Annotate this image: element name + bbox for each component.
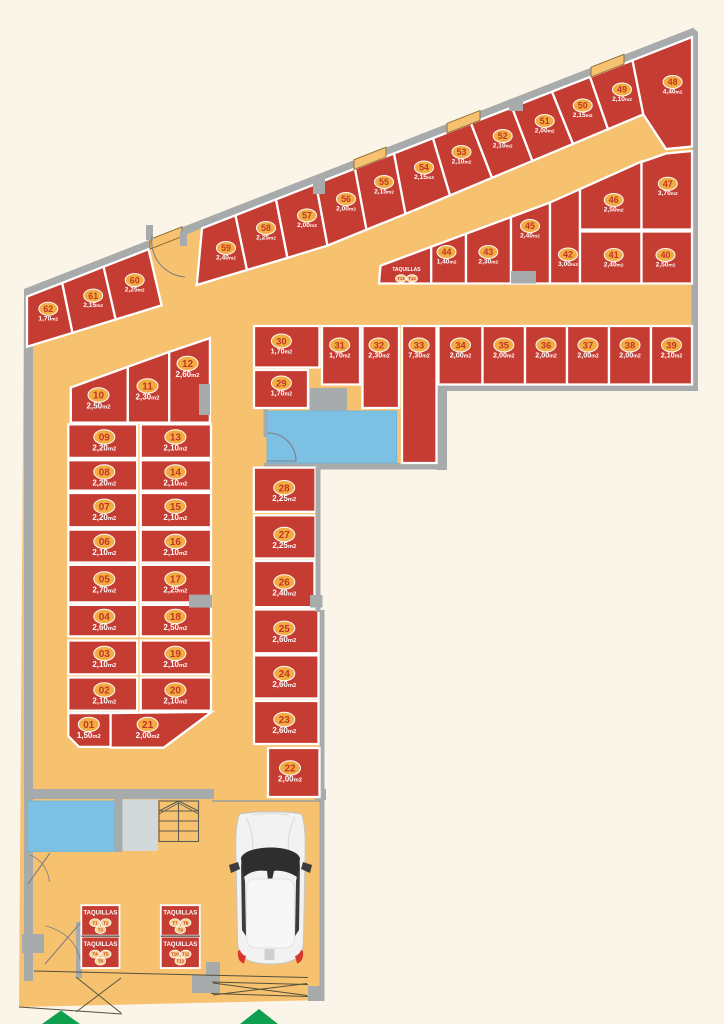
svg-text:TAQUILLAS: TAQUILLAS xyxy=(163,911,197,917)
svg-text:53: 53 xyxy=(457,147,467,157)
svg-text:08: 08 xyxy=(99,468,111,479)
svg-text:T11: T11 xyxy=(182,952,190,957)
svg-text:1,40m2: 1,40m2 xyxy=(437,259,457,266)
svg-text:46: 46 xyxy=(609,195,619,205)
svg-text:20: 20 xyxy=(170,686,182,697)
svg-text:44: 44 xyxy=(442,247,452,257)
svg-text:41: 41 xyxy=(609,250,619,260)
svg-text:50: 50 xyxy=(578,101,588,111)
svg-text:2,50m2: 2,50m2 xyxy=(656,262,676,269)
svg-text:25: 25 xyxy=(279,624,291,635)
svg-text:T13: T13 xyxy=(397,276,405,281)
svg-text:T10: T10 xyxy=(171,952,179,957)
svg-text:48: 48 xyxy=(668,77,678,87)
svg-text:TAQUILLAS: TAQUILLAS xyxy=(163,942,197,948)
svg-text:2,50m2: 2,50m2 xyxy=(604,207,624,214)
svg-text:55: 55 xyxy=(379,177,389,187)
svg-text:45: 45 xyxy=(525,221,535,231)
svg-text:06: 06 xyxy=(99,537,111,548)
svg-text:1,70m2: 1,70m2 xyxy=(38,315,58,322)
svg-text:TAQUILLAS: TAQUILLAS xyxy=(83,911,117,917)
svg-text:11: 11 xyxy=(142,382,153,393)
svg-text:33: 33 xyxy=(414,339,424,350)
svg-text:T1: T1 xyxy=(92,920,98,925)
svg-text:43: 43 xyxy=(483,247,493,257)
svg-text:T12: T12 xyxy=(177,959,185,964)
svg-text:T9: T9 xyxy=(178,927,184,932)
svg-text:T4: T4 xyxy=(92,952,98,957)
svg-text:2,15m2: 2,15m2 xyxy=(83,302,103,309)
svg-text:15: 15 xyxy=(170,502,182,513)
svg-text:01: 01 xyxy=(83,720,95,731)
svg-text:2,10m2: 2,10m2 xyxy=(452,159,472,166)
svg-text:30: 30 xyxy=(276,335,286,346)
svg-text:24: 24 xyxy=(279,669,291,680)
svg-text:36: 36 xyxy=(541,339,551,350)
svg-text:03: 03 xyxy=(99,649,111,660)
svg-text:61: 61 xyxy=(88,291,98,301)
svg-text:2,25m2: 2,25m2 xyxy=(125,287,145,294)
svg-text:27: 27 xyxy=(279,530,291,541)
svg-text:32: 32 xyxy=(374,339,384,350)
svg-text:2,00m2: 2,00m2 xyxy=(336,206,356,213)
svg-text:16: 16 xyxy=(170,537,182,548)
svg-text:13: 13 xyxy=(170,433,182,444)
svg-text:02: 02 xyxy=(99,686,111,697)
svg-text:2,15m2: 2,15m2 xyxy=(374,189,394,196)
svg-text:2,00m2: 2,00m2 xyxy=(535,128,555,135)
svg-text:2,40m2: 2,40m2 xyxy=(604,262,624,269)
svg-text:T2: T2 xyxy=(103,920,109,925)
svg-text:59: 59 xyxy=(221,243,231,253)
svg-text:37: 37 xyxy=(583,339,593,350)
svg-text:12: 12 xyxy=(182,359,194,370)
svg-text:14: 14 xyxy=(170,468,182,479)
svg-text:57: 57 xyxy=(302,211,312,221)
svg-text:2,10m2: 2,10m2 xyxy=(493,143,513,150)
svg-text:T6: T6 xyxy=(98,959,104,964)
svg-text:2,15m2: 2,15m2 xyxy=(414,174,434,181)
svg-text:42: 42 xyxy=(563,250,573,260)
svg-text:17: 17 xyxy=(170,575,182,586)
svg-text:23: 23 xyxy=(279,715,291,726)
svg-text:2,40m2: 2,40m2 xyxy=(520,233,540,240)
svg-text:58: 58 xyxy=(261,223,271,233)
svg-text:35: 35 xyxy=(499,339,509,350)
svg-text:34: 34 xyxy=(455,339,466,350)
svg-text:T3: T3 xyxy=(98,927,104,932)
svg-text:2,15m2: 2,15m2 xyxy=(573,112,593,119)
svg-text:4,40m2: 4,40m2 xyxy=(663,89,683,96)
svg-text:52: 52 xyxy=(498,131,508,141)
svg-text:39: 39 xyxy=(666,339,676,350)
svg-text:04: 04 xyxy=(99,612,111,623)
svg-text:60: 60 xyxy=(130,275,140,285)
svg-text:19: 19 xyxy=(170,649,182,660)
svg-text:49: 49 xyxy=(617,85,627,95)
svg-text:T7: T7 xyxy=(172,920,178,925)
svg-text:T5: T5 xyxy=(103,952,109,957)
svg-text:54: 54 xyxy=(419,163,429,173)
svg-text:05: 05 xyxy=(99,575,111,586)
svg-text:3,70m2: 3,70m2 xyxy=(658,190,678,197)
svg-text:21: 21 xyxy=(142,720,154,731)
svg-text:09: 09 xyxy=(99,433,111,444)
svg-text:10: 10 xyxy=(93,391,105,402)
svg-text:47: 47 xyxy=(663,179,673,189)
svg-text:T8: T8 xyxy=(183,920,189,925)
svg-text:28: 28 xyxy=(279,483,291,494)
svg-text:18: 18 xyxy=(170,612,182,623)
svg-text:3,00m2: 3,00m2 xyxy=(558,261,578,268)
svg-text:2,00m2: 2,00m2 xyxy=(297,222,317,229)
svg-text:07: 07 xyxy=(99,502,111,513)
svg-text:2,25m2: 2,25m2 xyxy=(256,235,276,242)
svg-text:40: 40 xyxy=(661,250,671,260)
svg-text:56: 56 xyxy=(341,194,351,204)
svg-text:T14: T14 xyxy=(408,276,416,281)
svg-text:62: 62 xyxy=(43,304,53,314)
svg-text:26: 26 xyxy=(279,578,291,589)
svg-text:29: 29 xyxy=(276,377,286,388)
svg-text:2,10m2: 2,10m2 xyxy=(612,96,632,103)
svg-text:51: 51 xyxy=(540,116,550,126)
svg-text:22: 22 xyxy=(284,764,296,775)
svg-text:31: 31 xyxy=(334,339,344,350)
svg-text:2,30m2: 2,30m2 xyxy=(478,259,498,266)
svg-text:2,40m2: 2,40m2 xyxy=(216,255,236,262)
svg-text:TAQUILLAS: TAQUILLAS xyxy=(83,942,117,948)
svg-text:38: 38 xyxy=(625,339,635,350)
svg-text:TAQUILLAS: TAQUILLAS xyxy=(392,267,421,273)
